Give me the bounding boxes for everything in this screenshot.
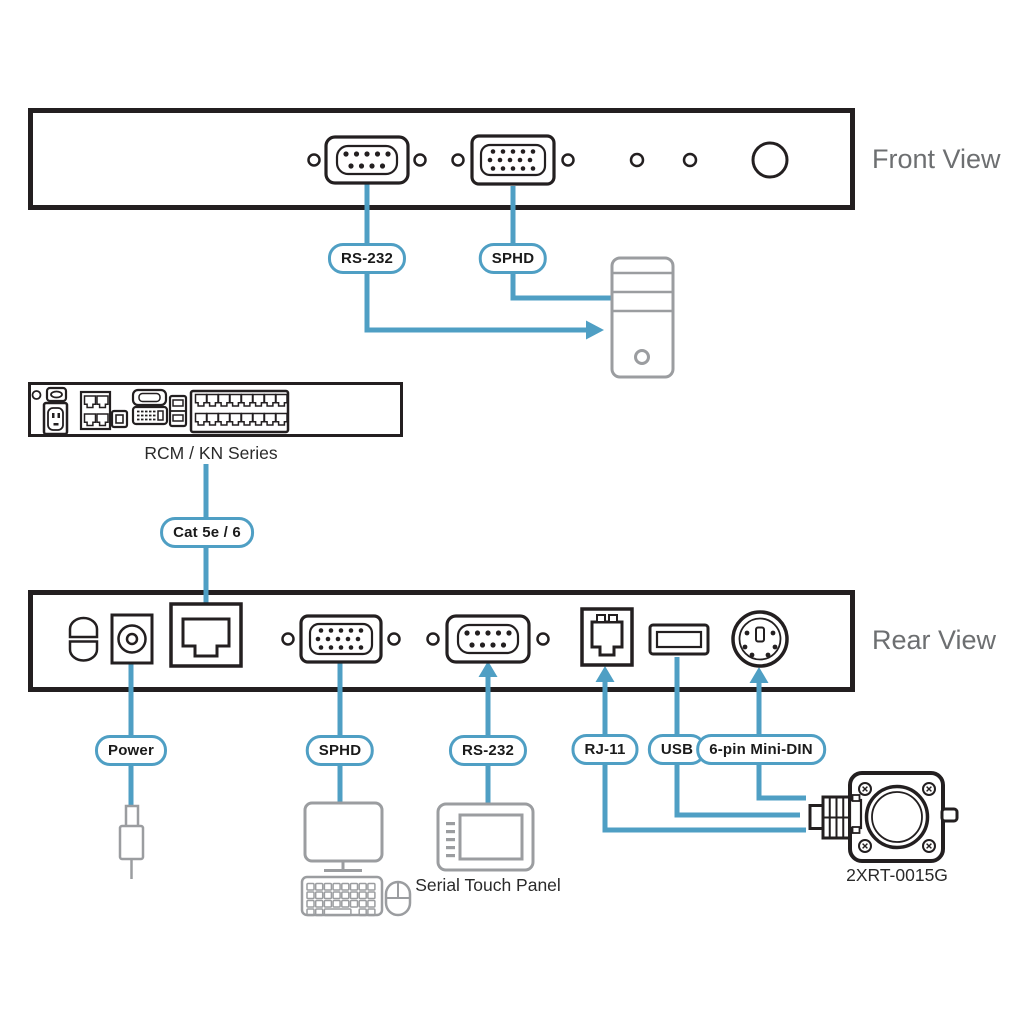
connection-lines (131, 184, 806, 830)
rear-panel (28, 590, 855, 692)
kvm-caption: RCM / KN Series (144, 443, 277, 464)
computer-tower-icon (612, 258, 673, 377)
latch (850, 795, 861, 833)
rear-view-caption: Rear View (872, 625, 996, 656)
cat-cable-label: Cat 5e / 6 (160, 517, 254, 548)
monitor-icon (305, 803, 382, 871)
connection-diagram: Front View Rear View RS-232 SPHD RCM / K… (0, 0, 1024, 1024)
front-view-caption: Front View (872, 144, 1001, 175)
side-stub (942, 809, 957, 821)
rear-rs232-label: RS-232 (449, 735, 527, 766)
rear-sphd-label: SPHD (306, 735, 374, 766)
power-label: Power (95, 735, 167, 766)
minidin-to-device-line (759, 761, 806, 798)
minidin-label: 6-pin Mini-DIN (696, 734, 826, 765)
audio-device-caption: 2XRT-0015G (846, 865, 948, 886)
front-sphd-to-computer-line (513, 270, 612, 298)
front-rs232-label: RS-232 (328, 243, 406, 274)
usb-to-device-line (677, 761, 800, 815)
arrow-right-to-computer (586, 321, 604, 340)
touch-panel-icon (438, 804, 533, 870)
cable-gland (823, 797, 850, 838)
kvm-switch-device (28, 382, 403, 437)
front-sphd-label: SPHD (479, 243, 547, 274)
corner-screws (859, 783, 935, 852)
power-plug-icon (120, 806, 143, 879)
rj11-label: RJ-11 (571, 734, 638, 765)
keyboard-icon (302, 877, 382, 916)
front-panel (28, 108, 855, 210)
audio-device-icon (810, 773, 957, 861)
touch-panel-caption: Serial Touch Panel (415, 875, 561, 896)
peripheral-icons (120, 803, 533, 916)
front-rs232-to-computer-line (367, 270, 586, 330)
mouse-icon (386, 882, 410, 915)
rj11-to-device-line (605, 761, 806, 830)
